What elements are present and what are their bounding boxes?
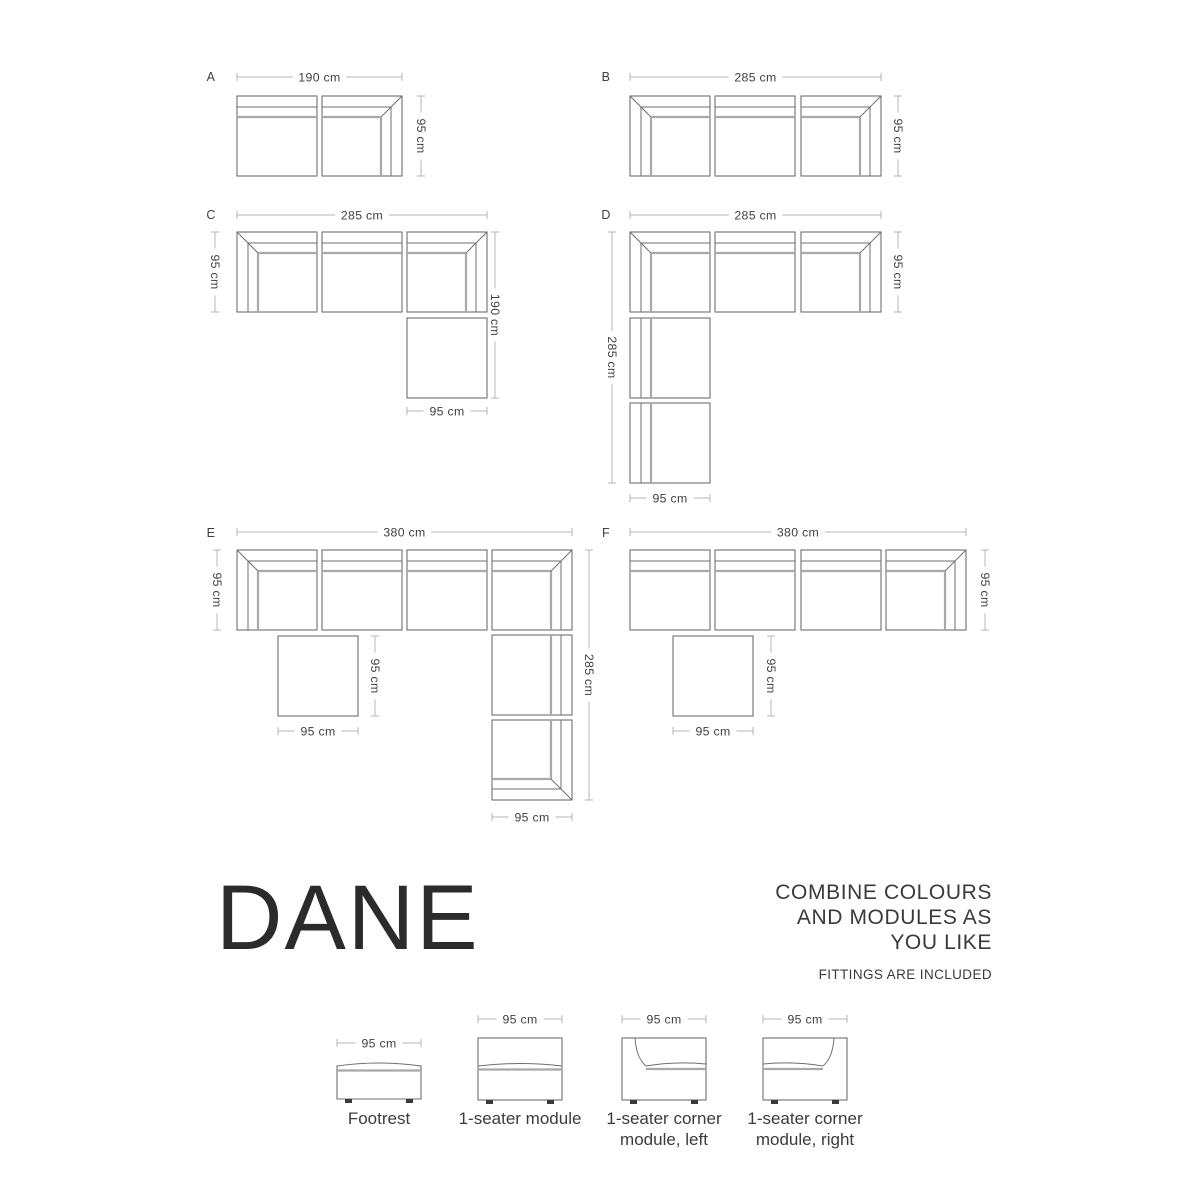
dimension: 380 cm — [630, 525, 966, 539]
dimension-label: 285 cm — [341, 208, 383, 222]
dimension-label: 95 cm — [647, 1012, 682, 1026]
dimension: 95 cm — [208, 232, 222, 312]
dimension-label: 95 cm — [515, 810, 550, 824]
module-corner-tl — [237, 232, 317, 312]
dimension: 95 cm — [478, 1012, 562, 1026]
module-foot — [486, 1100, 493, 1104]
dimension: 95 cm — [414, 96, 428, 176]
dimension-label: 285 cm — [582, 654, 596, 696]
configuration-d: D285 cm285 cm95 cm95 cm — [601, 208, 905, 505]
module-outline — [322, 232, 402, 312]
dimension-label: 95 cm — [653, 491, 688, 505]
module-footrest-top — [673, 636, 753, 716]
dimension-label: 95 cm — [764, 659, 778, 694]
module-foot — [630, 1100, 637, 1104]
module-corner-br — [492, 720, 572, 800]
dimension-label: 95 cm — [788, 1012, 823, 1026]
dimension: 285 cm — [630, 70, 881, 84]
module-seat — [322, 550, 402, 630]
module-seat — [715, 550, 795, 630]
module-corner-tl — [630, 96, 710, 176]
dimension: 95 cm — [210, 550, 224, 630]
dimension-label: 285 cm — [734, 70, 776, 84]
catalog-corner-right: 95 cm — [763, 1012, 847, 1104]
dimension: 95 cm — [492, 810, 572, 824]
dimension: 95 cm — [407, 404, 487, 418]
module-foot — [345, 1099, 352, 1103]
module-outline — [715, 232, 795, 312]
module-outline — [407, 318, 487, 398]
configuration-b: B285 cm95 cm — [602, 70, 905, 176]
brand-title: DANE — [216, 872, 480, 964]
module-corner-tr — [407, 232, 487, 312]
tagline-block: COMBINE COLOURS AND MODULES AS YOU LIKE … — [775, 880, 992, 987]
module-outline — [630, 318, 710, 398]
module-foot — [832, 1100, 839, 1104]
catalog-seat: 95 cm — [478, 1012, 562, 1104]
dimension: 95 cm — [278, 724, 358, 738]
diagram-canvas: A190 cm95 cmB285 cm95 cmC285 cm95 cm190 … — [0, 0, 1200, 1200]
module-seat — [322, 232, 402, 312]
configuration-letter: A — [207, 70, 216, 84]
configuration-letter: D — [601, 208, 610, 222]
dimension: 95 cm — [337, 1036, 421, 1050]
tagline-line: COMBINE COLOURS — [775, 880, 992, 905]
dimension-label: 95 cm — [696, 724, 731, 738]
dimension: 95 cm — [630, 491, 710, 505]
configuration-a: A190 cm95 cm — [207, 70, 428, 176]
dimension-label: 95 cm — [430, 404, 465, 418]
module-outline — [407, 550, 487, 630]
configuration-letter: F — [602, 526, 610, 540]
dimension-label: 380 cm — [777, 525, 819, 539]
module-outline — [715, 96, 795, 176]
footrest-outline — [337, 1063, 421, 1099]
dimension-label: 95 cm — [301, 724, 336, 738]
dimension: 285 cm — [630, 208, 881, 222]
module-corner-tr — [322, 96, 402, 176]
dimension: 190 cm — [488, 232, 502, 398]
catalog-label-corner-right: 1-seater corner module, right — [730, 1108, 880, 1150]
dimension: 95 cm — [891, 96, 905, 176]
dimension: 95 cm — [622, 1012, 706, 1026]
module-seat — [801, 550, 881, 630]
dimension-label: 380 cm — [383, 525, 425, 539]
module-outline — [673, 636, 753, 716]
dimension: 95 cm — [891, 232, 905, 312]
module-outline — [322, 550, 402, 630]
catalog-label-corner-left: 1-seater corner module, left — [589, 1108, 739, 1150]
module-seat — [237, 96, 317, 176]
module-outline — [237, 96, 317, 176]
dimension-label: 190 cm — [488, 294, 502, 336]
module-outline — [630, 403, 710, 483]
catalog-footrest: 95 cm — [337, 1036, 421, 1103]
dimension: 95 cm — [764, 636, 778, 716]
dimension: 95 cm — [368, 636, 382, 716]
dimension-label: 95 cm — [503, 1012, 538, 1026]
dimension-label: 95 cm — [210, 573, 224, 608]
configuration-letter: B — [602, 70, 611, 84]
catalog-label-1-seater: 1-seater module — [440, 1108, 600, 1129]
module-outline — [278, 636, 358, 716]
module-corner-tl — [237, 550, 317, 630]
configuration-e: E380 cm95 cm95 cm95 cm285 cm95 cm — [207, 525, 596, 824]
module-corner-tr — [492, 550, 572, 630]
catalog-label-footrest: Footrest — [299, 1108, 459, 1129]
module-foot — [547, 1100, 554, 1104]
dimension-label: 95 cm — [414, 119, 428, 154]
module-footrest-top — [278, 636, 358, 716]
module-seat — [407, 550, 487, 630]
module-foot — [406, 1099, 413, 1103]
dimension-label: 95 cm — [978, 573, 992, 608]
configuration-c: C285 cm95 cm190 cm95 cm — [206, 208, 502, 418]
configuration-letter: E — [207, 526, 216, 540]
module-footrest-top — [407, 318, 487, 398]
module-seat — [715, 232, 795, 312]
dimension-label: 95 cm — [208, 255, 222, 290]
module-corner-tr — [801, 232, 881, 312]
module-corner-tr — [886, 550, 966, 630]
configuration-f: F380 cm95 cm95 cm95 cm — [602, 525, 992, 738]
dimension: 380 cm — [237, 525, 572, 539]
dimension: 285 cm — [237, 208, 487, 222]
dimension: 190 cm — [237, 70, 402, 84]
module-outline — [630, 550, 710, 630]
tagline-line: YOU LIKE — [775, 930, 992, 955]
dimension: 285 cm — [605, 232, 619, 483]
dimension: 95 cm — [978, 550, 992, 630]
fittings-note: FITTINGS ARE INCLUDED — [775, 962, 992, 987]
module-side-right — [492, 635, 572, 715]
module-seat — [715, 96, 795, 176]
dimension-label: 95 cm — [362, 1036, 397, 1050]
dimension-label: 95 cm — [891, 119, 905, 154]
dimension-label: 190 cm — [298, 70, 340, 84]
module-outline — [801, 550, 881, 630]
module-side-left — [630, 403, 710, 483]
tagline-line: AND MODULES AS — [775, 905, 992, 930]
catalog-corner-left: 95 cm — [622, 1012, 706, 1104]
dimension-label: 95 cm — [368, 659, 382, 694]
module-foot — [771, 1100, 778, 1104]
dimension: 95 cm — [763, 1012, 847, 1026]
dimension-label: 285 cm — [605, 336, 619, 378]
module-outline — [715, 550, 795, 630]
module-side-left — [630, 318, 710, 398]
module-seat — [630, 550, 710, 630]
dimension-label: 95 cm — [891, 255, 905, 290]
module-corner-tr — [801, 96, 881, 176]
sofa-spec-sheet: A190 cm95 cmB285 cm95 cmC285 cm95 cm190 … — [0, 0, 1200, 1200]
dimension-label: 285 cm — [734, 208, 776, 222]
dimension: 285 cm — [582, 550, 596, 800]
module-corner-tl — [630, 232, 710, 312]
module-outline — [492, 635, 572, 715]
configuration-letter: C — [206, 208, 215, 222]
module-foot — [691, 1100, 698, 1104]
dimension: 95 cm — [673, 724, 753, 738]
